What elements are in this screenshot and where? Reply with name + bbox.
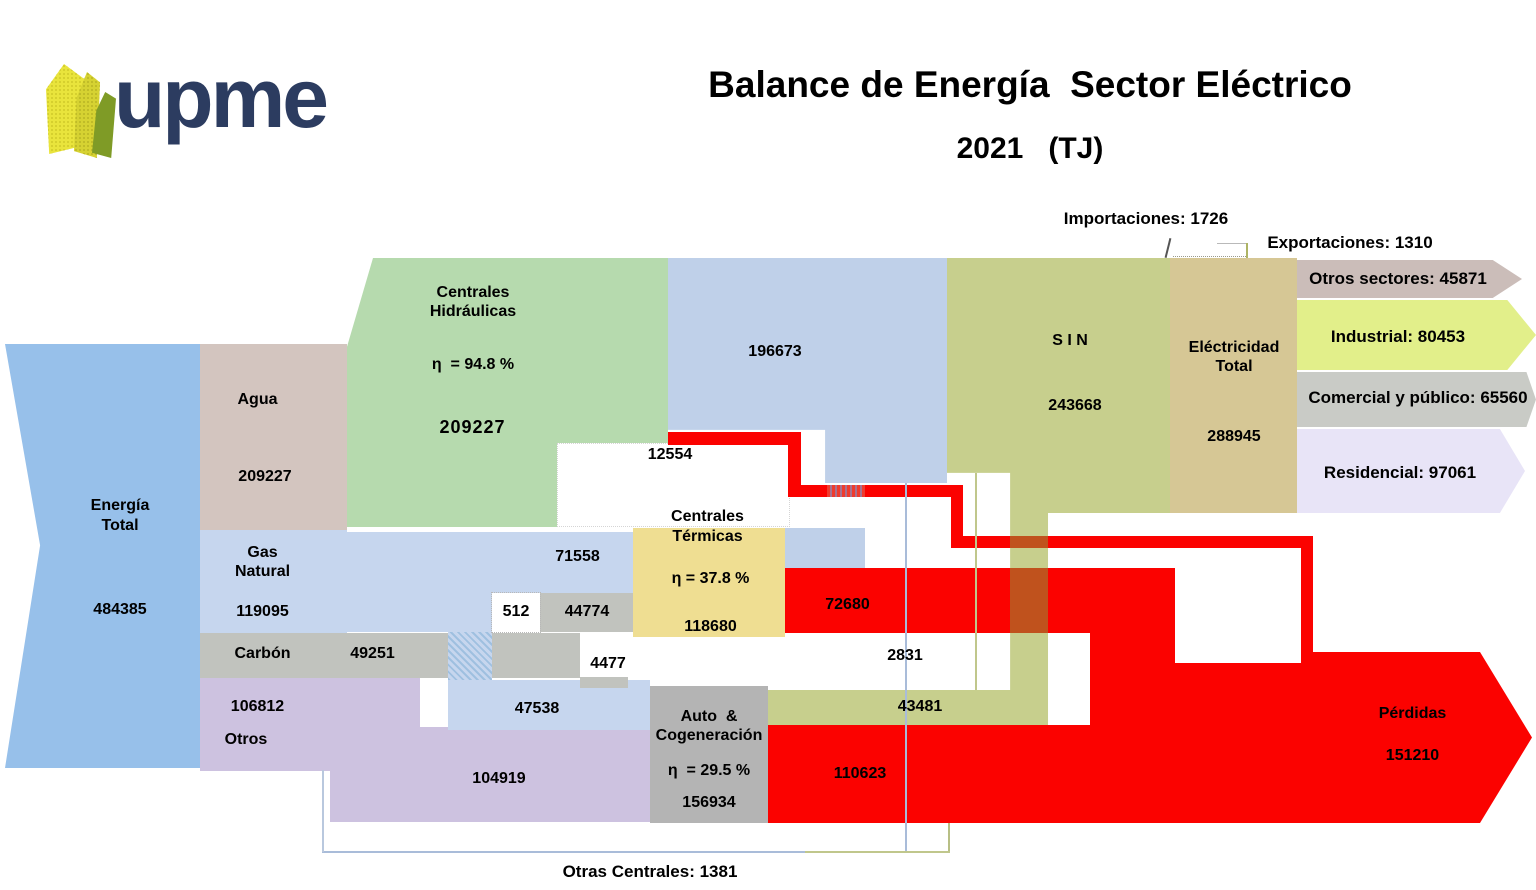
- flow-termicas-perdidas-down: [1090, 633, 1175, 725]
- label-importaciones: Importaciones: 1726: [1000, 209, 1292, 229]
- value-electricidad: 288945: [1176, 428, 1292, 446]
- page-title: Balance de Energía Sector Eléctrico: [600, 64, 1460, 107]
- node-otros: [200, 678, 347, 771]
- label-comercial: Comercial y público: 65560: [1300, 388, 1536, 408]
- label-industrial: Industrial: 80453: [1302, 327, 1494, 347]
- value-energia-total: 484385: [40, 601, 200, 619]
- label-hidraulicas-2: Hidráulicas: [398, 303, 548, 321]
- label-auto-cog-2: Cogeneración: [643, 727, 775, 745]
- label-sin: S I N: [1000, 332, 1140, 350]
- node-agua: [200, 344, 347, 530]
- line-importaciones-diagonal: [1165, 238, 1172, 258]
- label-agua: Agua: [195, 391, 320, 409]
- overlap-pipe-olive: [1010, 536, 1048, 548]
- value-flow-71558: 71558: [520, 548, 635, 566]
- label-carbon: Carbón: [205, 645, 320, 663]
- value-flow-12554: 12554: [600, 446, 740, 464]
- line-otras-centrales-olive-v2: [948, 823, 950, 852]
- pipe-hidro-loss-v1: [788, 443, 801, 487]
- value-flow-2831: 2831: [845, 647, 965, 665]
- label-energia-total-1: Energía: [40, 497, 200, 515]
- flow-perdidas-top: [1313, 652, 1480, 663]
- overlap-pipe-blue: [827, 485, 865, 497]
- value-hidraulicas: 209227: [395, 417, 550, 438]
- pipe-hidro-loss-h1: [668, 432, 801, 445]
- label-otros: Otros: [200, 731, 292, 749]
- label-gas-natural-2: Natural: [205, 563, 320, 581]
- value-flow-44774: 44774: [538, 603, 636, 621]
- pipe-hidro-loss-v3: [1301, 548, 1313, 663]
- sankey-energy-balance: upme Balance de Energía Sector Eléctrico…: [0, 0, 1536, 890]
- line-otras-centrales-blue-v-left: [322, 770, 324, 852]
- label-otras-centrales: Otras Centrales: 1381: [480, 862, 820, 882]
- flow-step-4477: [580, 677, 628, 688]
- label-auto-cog-1: Auto &: [650, 708, 768, 726]
- value-flow-43481: 43481: [845, 698, 995, 716]
- label-otros-sectores: Otros sectores: 45871: [1302, 269, 1494, 289]
- logo-wordmark: upme: [114, 56, 326, 140]
- value-flow-104919: 104919: [418, 770, 580, 788]
- label-hidraulicas-eff: η = 94.8 %: [398, 356, 548, 374]
- line-otras-centrales-olive-h: [805, 851, 950, 853]
- label-exportaciones: Exportaciones: 1310: [1204, 233, 1496, 253]
- line-importaciones-dotted: [1173, 256, 1248, 257]
- value-gas-natural: 119095: [205, 603, 320, 621]
- pipe-hidro-loss-v2: [951, 497, 963, 536]
- value-termicas: 118680: [633, 618, 788, 636]
- value-flow-4477: 4477: [566, 655, 650, 673]
- value-agua: 209227: [197, 468, 333, 486]
- label-electricidad-1: Eléctricidad: [1176, 339, 1292, 357]
- flow-gas-carbon-crossing: [448, 632, 492, 680]
- value-perdidas: 151210: [1340, 747, 1485, 765]
- arrow-perdidas-head: [1480, 652, 1532, 823]
- label-termicas-1: Centrales: [635, 508, 780, 526]
- pipe-hidro-loss-h3: [951, 536, 1313, 548]
- label-residencial: Residencial: 97061: [1302, 463, 1498, 483]
- value-flow-196673: 196673: [715, 343, 835, 361]
- flow-termicas-upper-blue: [785, 528, 865, 568]
- label-termicas-2: Térmicas: [635, 528, 780, 546]
- node-energia-total: [5, 344, 200, 768]
- line-otras-centrales-blue-v: [905, 483, 907, 852]
- value-flow-110623: 110623: [790, 765, 930, 783]
- value-otros: 106812: [200, 698, 315, 716]
- value-carbon: 49251: [315, 645, 430, 663]
- value-auto-cog: 156934: [643, 794, 775, 812]
- label-gas-natural-1: Gas: [205, 544, 320, 562]
- label-electricidad-2: Total: [1176, 358, 1292, 376]
- pipe-hidro-loss-h2: [788, 485, 963, 497]
- value-flow-72680: 72680: [790, 596, 905, 614]
- logo: upme: [40, 50, 360, 165]
- label-energia-total-2: Total: [40, 517, 200, 535]
- line-otras-centrales-blue-h: [322, 851, 805, 853]
- node-electricidad-total: [1170, 258, 1297, 513]
- flow-gas-lower: [347, 593, 492, 632]
- label-termicas-eff: η = 37.8 %: [633, 570, 788, 588]
- value-sin: 243668: [1000, 397, 1150, 415]
- line-otras-centrales-olive-v: [975, 473, 977, 690]
- value-flow-512: 512: [490, 603, 542, 621]
- flow-otros-down: [347, 678, 420, 727]
- label-auto-cog-eff: η = 29.5 %: [643, 762, 775, 780]
- label-perdidas: Pérdidas: [1340, 705, 1485, 723]
- label-hidraulicas-1: Centrales: [398, 284, 548, 302]
- page-subtitle: 2021 (TJ): [760, 132, 1300, 167]
- overlap-72680-olive: [1010, 568, 1048, 633]
- value-flow-47538: 47538: [478, 700, 596, 718]
